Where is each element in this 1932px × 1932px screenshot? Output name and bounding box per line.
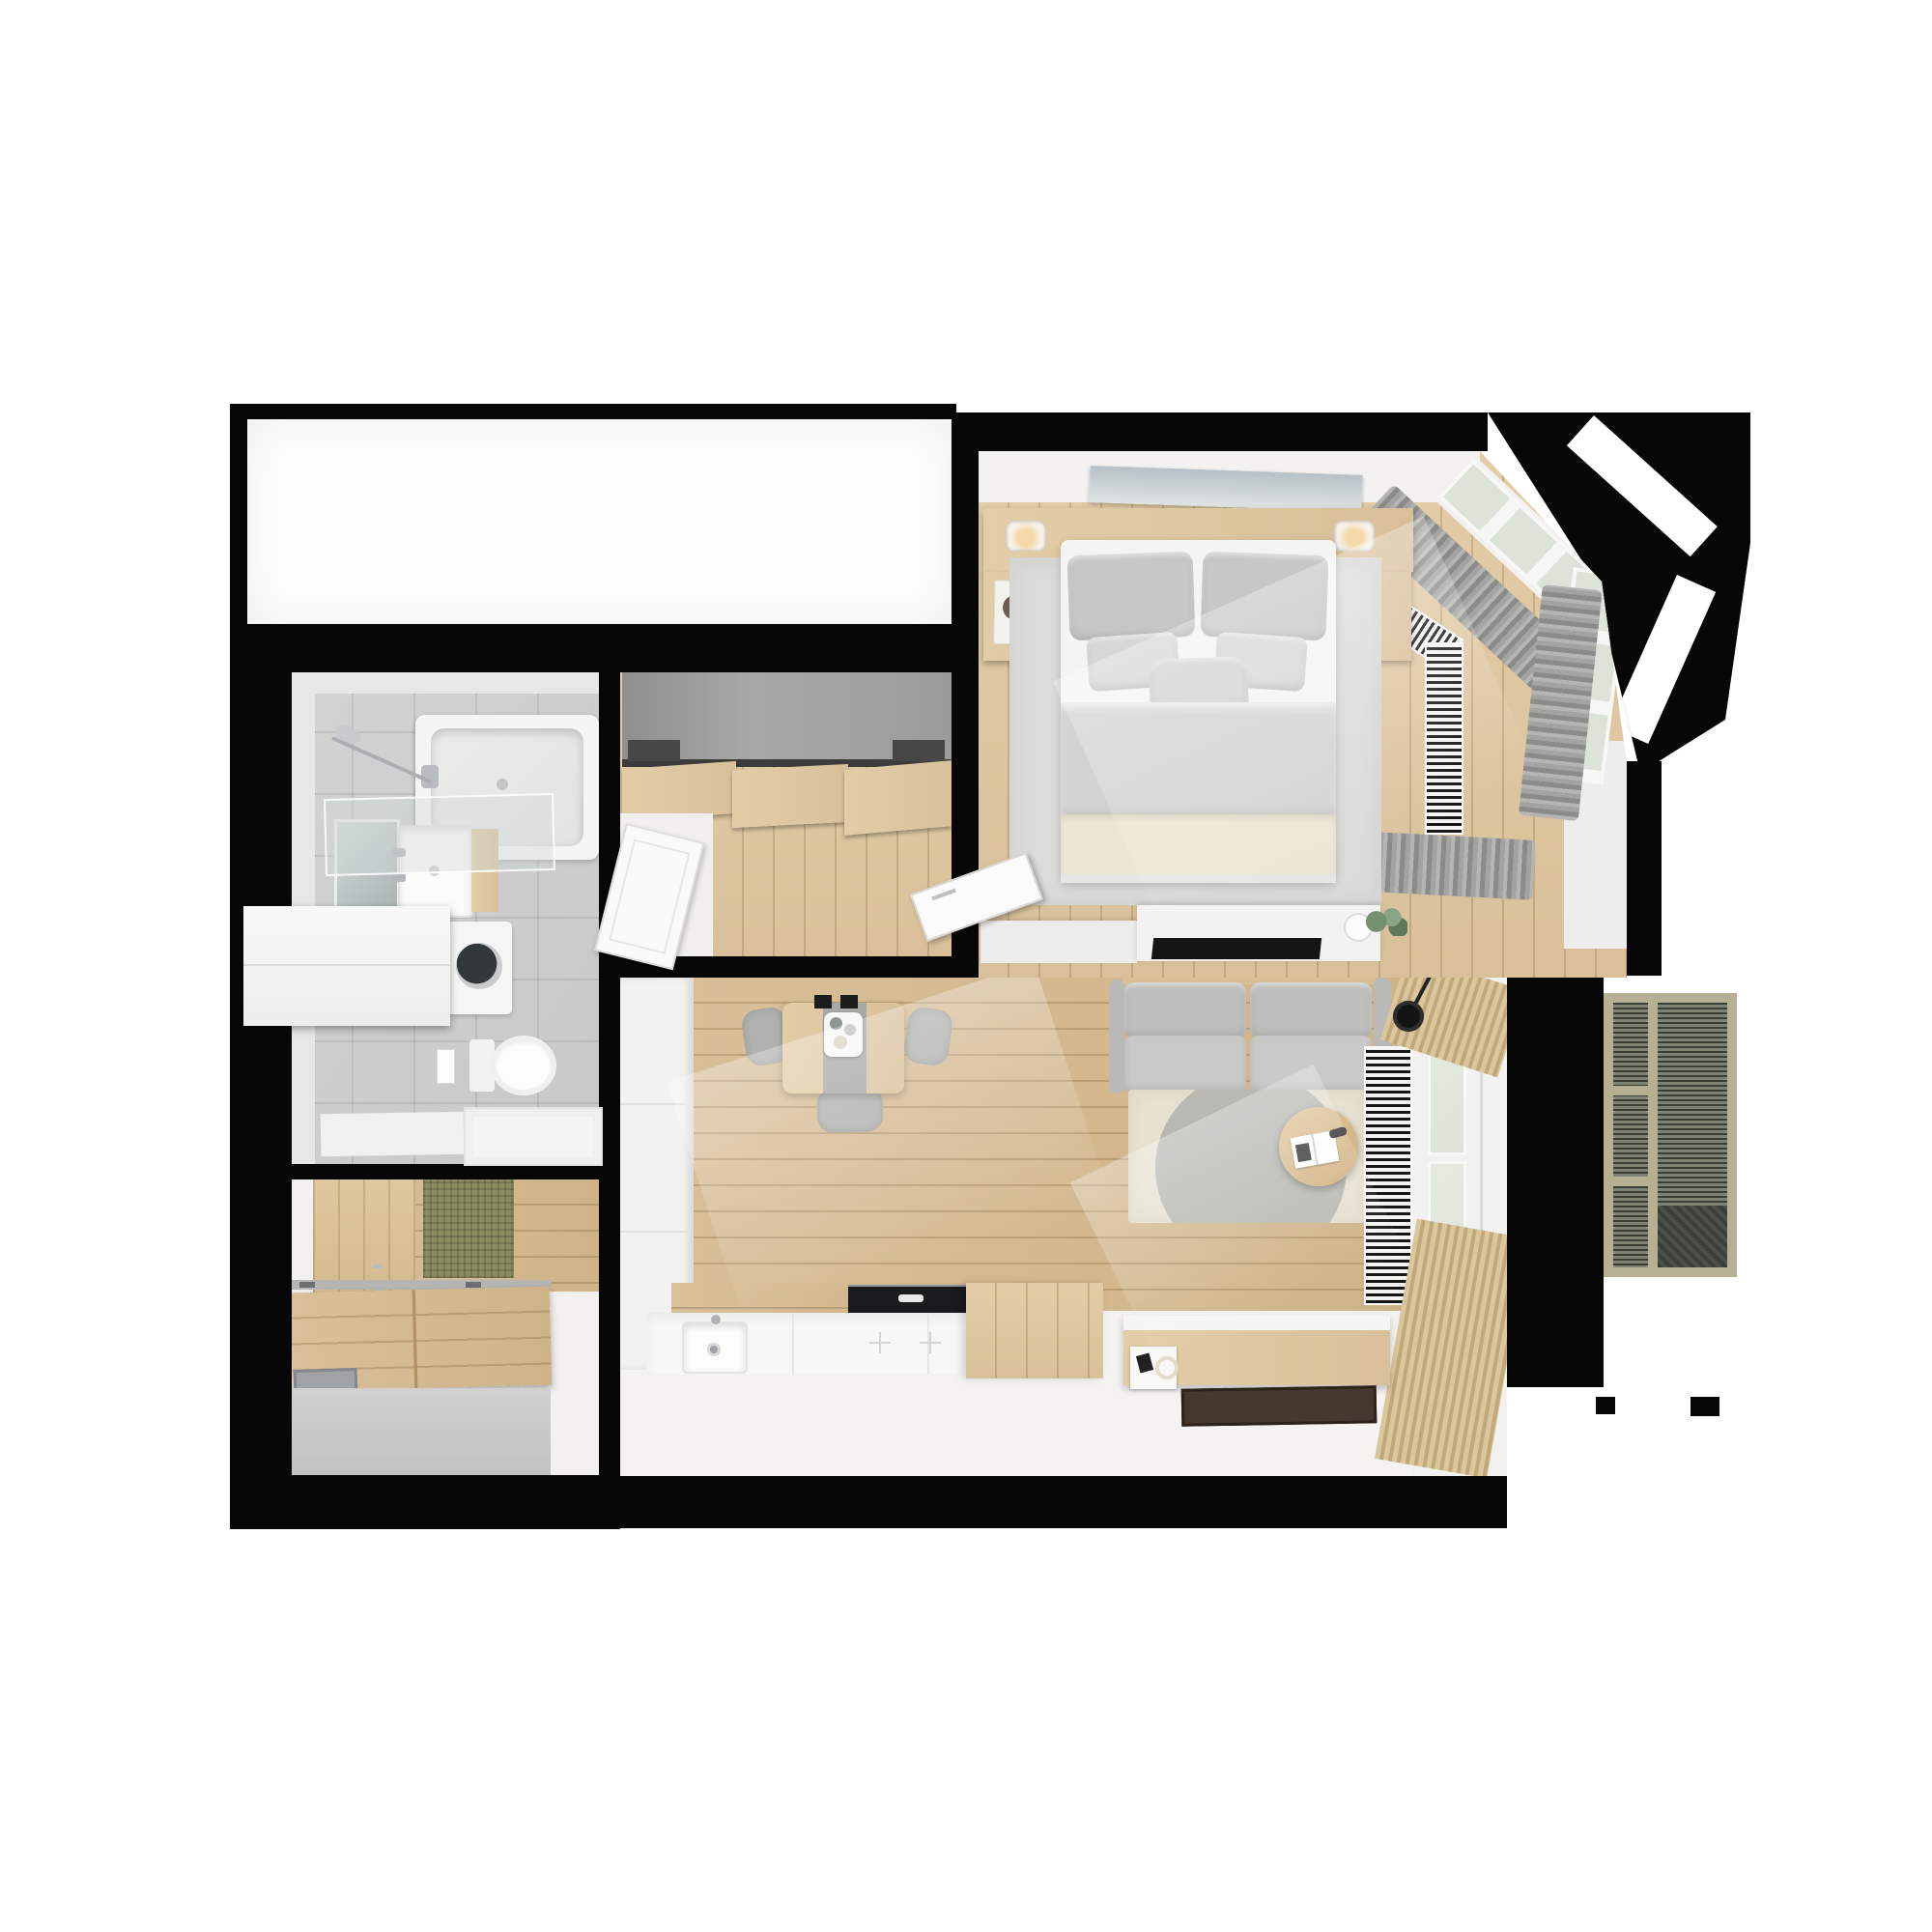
dark-mat (1181, 1385, 1378, 1427)
floor-plan-scene (0, 0, 1932, 1932)
sofa-back-cushion-1 (1124, 982, 1246, 1038)
room-living (620, 978, 1507, 1476)
rail-bracket-1 (299, 1282, 315, 1288)
counter-seam-1 (792, 1313, 794, 1375)
balcony-screen-enclosure (1604, 993, 1737, 1277)
living-radiator (1364, 1046, 1412, 1305)
room-empty (247, 419, 952, 624)
rail-bracket-2 (466, 1282, 481, 1288)
magazine-spine (1311, 1134, 1319, 1165)
wardrobe-door-3 (844, 760, 952, 836)
sofa-arm-left (1109, 980, 1124, 1094)
wall-bedroom-right (1627, 761, 1662, 976)
sideboard-top-edge (1123, 1316, 1390, 1330)
tub-glass-screen (324, 793, 555, 876)
wall-empty-room-top (230, 404, 956, 419)
cabinet-handle-1 (373, 1264, 383, 1268)
wall-bathroom-right (599, 672, 620, 1484)
cooktop (848, 1285, 972, 1314)
cooktop-handle (898, 1294, 923, 1302)
basin-faucet-2 (392, 873, 406, 882)
double-bed (1061, 540, 1336, 883)
table-clamp-1 (814, 995, 832, 1009)
wall-stub-a (1596, 1397, 1615, 1414)
desk (980, 921, 1137, 963)
cabinet-seam-2 (620, 1231, 694, 1233)
cabinet-seam-1 (620, 1103, 694, 1105)
throw-blanket (1061, 814, 1336, 876)
bathroom-door-panel-line (609, 838, 690, 953)
kitchen-peninsula (966, 1283, 1103, 1378)
screen-rail-1 (1613, 1086, 1648, 1095)
sofa-seat-cushion-2 (1250, 1036, 1372, 1094)
wall-mid-horizontal (230, 624, 961, 672)
burner-mark-2 (920, 1332, 941, 1353)
light-gap-lower (1609, 575, 1716, 744)
balcony-floor-patch (1658, 1206, 1727, 1267)
pillow-large-right (1201, 552, 1329, 640)
bathtub-drain (497, 779, 508, 790)
wardrobe-handle-left (628, 740, 680, 761)
room-entry (292, 1179, 599, 1475)
flush-plate (437, 1049, 455, 1084)
sofa-seat-cushion-1 (1124, 1036, 1246, 1094)
room-bedroom (979, 451, 1627, 978)
tray-jar-3 (834, 1036, 847, 1049)
toilet-bowl (491, 1036, 556, 1095)
wall-right-of-window (1505, 945, 1604, 1387)
bath-mat (321, 1112, 465, 1157)
sideboard-decor-tray (1130, 1347, 1177, 1389)
table-clamp-2 (840, 995, 858, 1009)
shower-tray (464, 1107, 603, 1166)
entry-bottom-wall-face (292, 1388, 551, 1475)
sink-drain (707, 1343, 721, 1356)
screen-rail-2 (1613, 1177, 1648, 1186)
sofa-back-cushion-2 (1250, 982, 1372, 1038)
duvet (1061, 702, 1336, 816)
tray-jar-2 (844, 1024, 856, 1036)
bedside-lamp-right (1334, 521, 1375, 552)
dining-chair-bottom (816, 1087, 884, 1133)
screen-vertical-divider (1648, 1003, 1658, 1267)
wardrobe-door-2 (732, 764, 848, 828)
wardrobe-door-1 (622, 761, 736, 821)
light-gap-upper (1567, 415, 1718, 556)
wall-bedroom-top (979, 412, 1488, 451)
wall-bottom-entry (230, 1475, 620, 1529)
floor-lamp-shade (1393, 1001, 1424, 1032)
dining-table (782, 1003, 904, 1094)
tv (1151, 938, 1321, 959)
entry-olive-doormat (423, 1179, 514, 1278)
vanity-drawer-seam (243, 964, 450, 966)
wall-bottom-living (599, 1476, 1507, 1528)
plant-leaves (1363, 907, 1407, 936)
serving-tray (824, 1012, 863, 1057)
tray-jar-1 (830, 1017, 842, 1030)
sunglasses (1328, 1126, 1348, 1139)
wardrobe-handle-right (893, 740, 945, 761)
bedroom-radiator-vertical (1425, 642, 1463, 835)
wall-bathroom-bottom (292, 1164, 620, 1179)
kitchen-sink (682, 1321, 748, 1374)
wall-stub-b (1690, 1397, 1719, 1416)
magazine-photo (1295, 1143, 1312, 1162)
wall-left-vertical (230, 672, 292, 1529)
vanity-cabinet-overhang (243, 906, 450, 1026)
bathroom-wall-tile-top (292, 672, 599, 694)
washer-door (456, 943, 502, 989)
bedroom-door-handle (931, 889, 956, 901)
pillow-large-left (1067, 552, 1196, 640)
sofa (1109, 978, 1391, 1094)
decor-card (1136, 1352, 1153, 1373)
coffee-table (1279, 1107, 1358, 1186)
sideboard (1123, 1316, 1390, 1385)
toilet (469, 1036, 558, 1095)
sink-faucet (711, 1315, 721, 1324)
washing-machine (444, 922, 512, 1014)
burner-mark-1 (869, 1332, 891, 1353)
bed-foot-frame (1061, 874, 1336, 883)
decor-rope (1155, 1356, 1179, 1379)
wall-empty-room-left (230, 404, 247, 636)
door-seam (412, 1290, 418, 1388)
bedside-lamp-left (1006, 521, 1046, 552)
